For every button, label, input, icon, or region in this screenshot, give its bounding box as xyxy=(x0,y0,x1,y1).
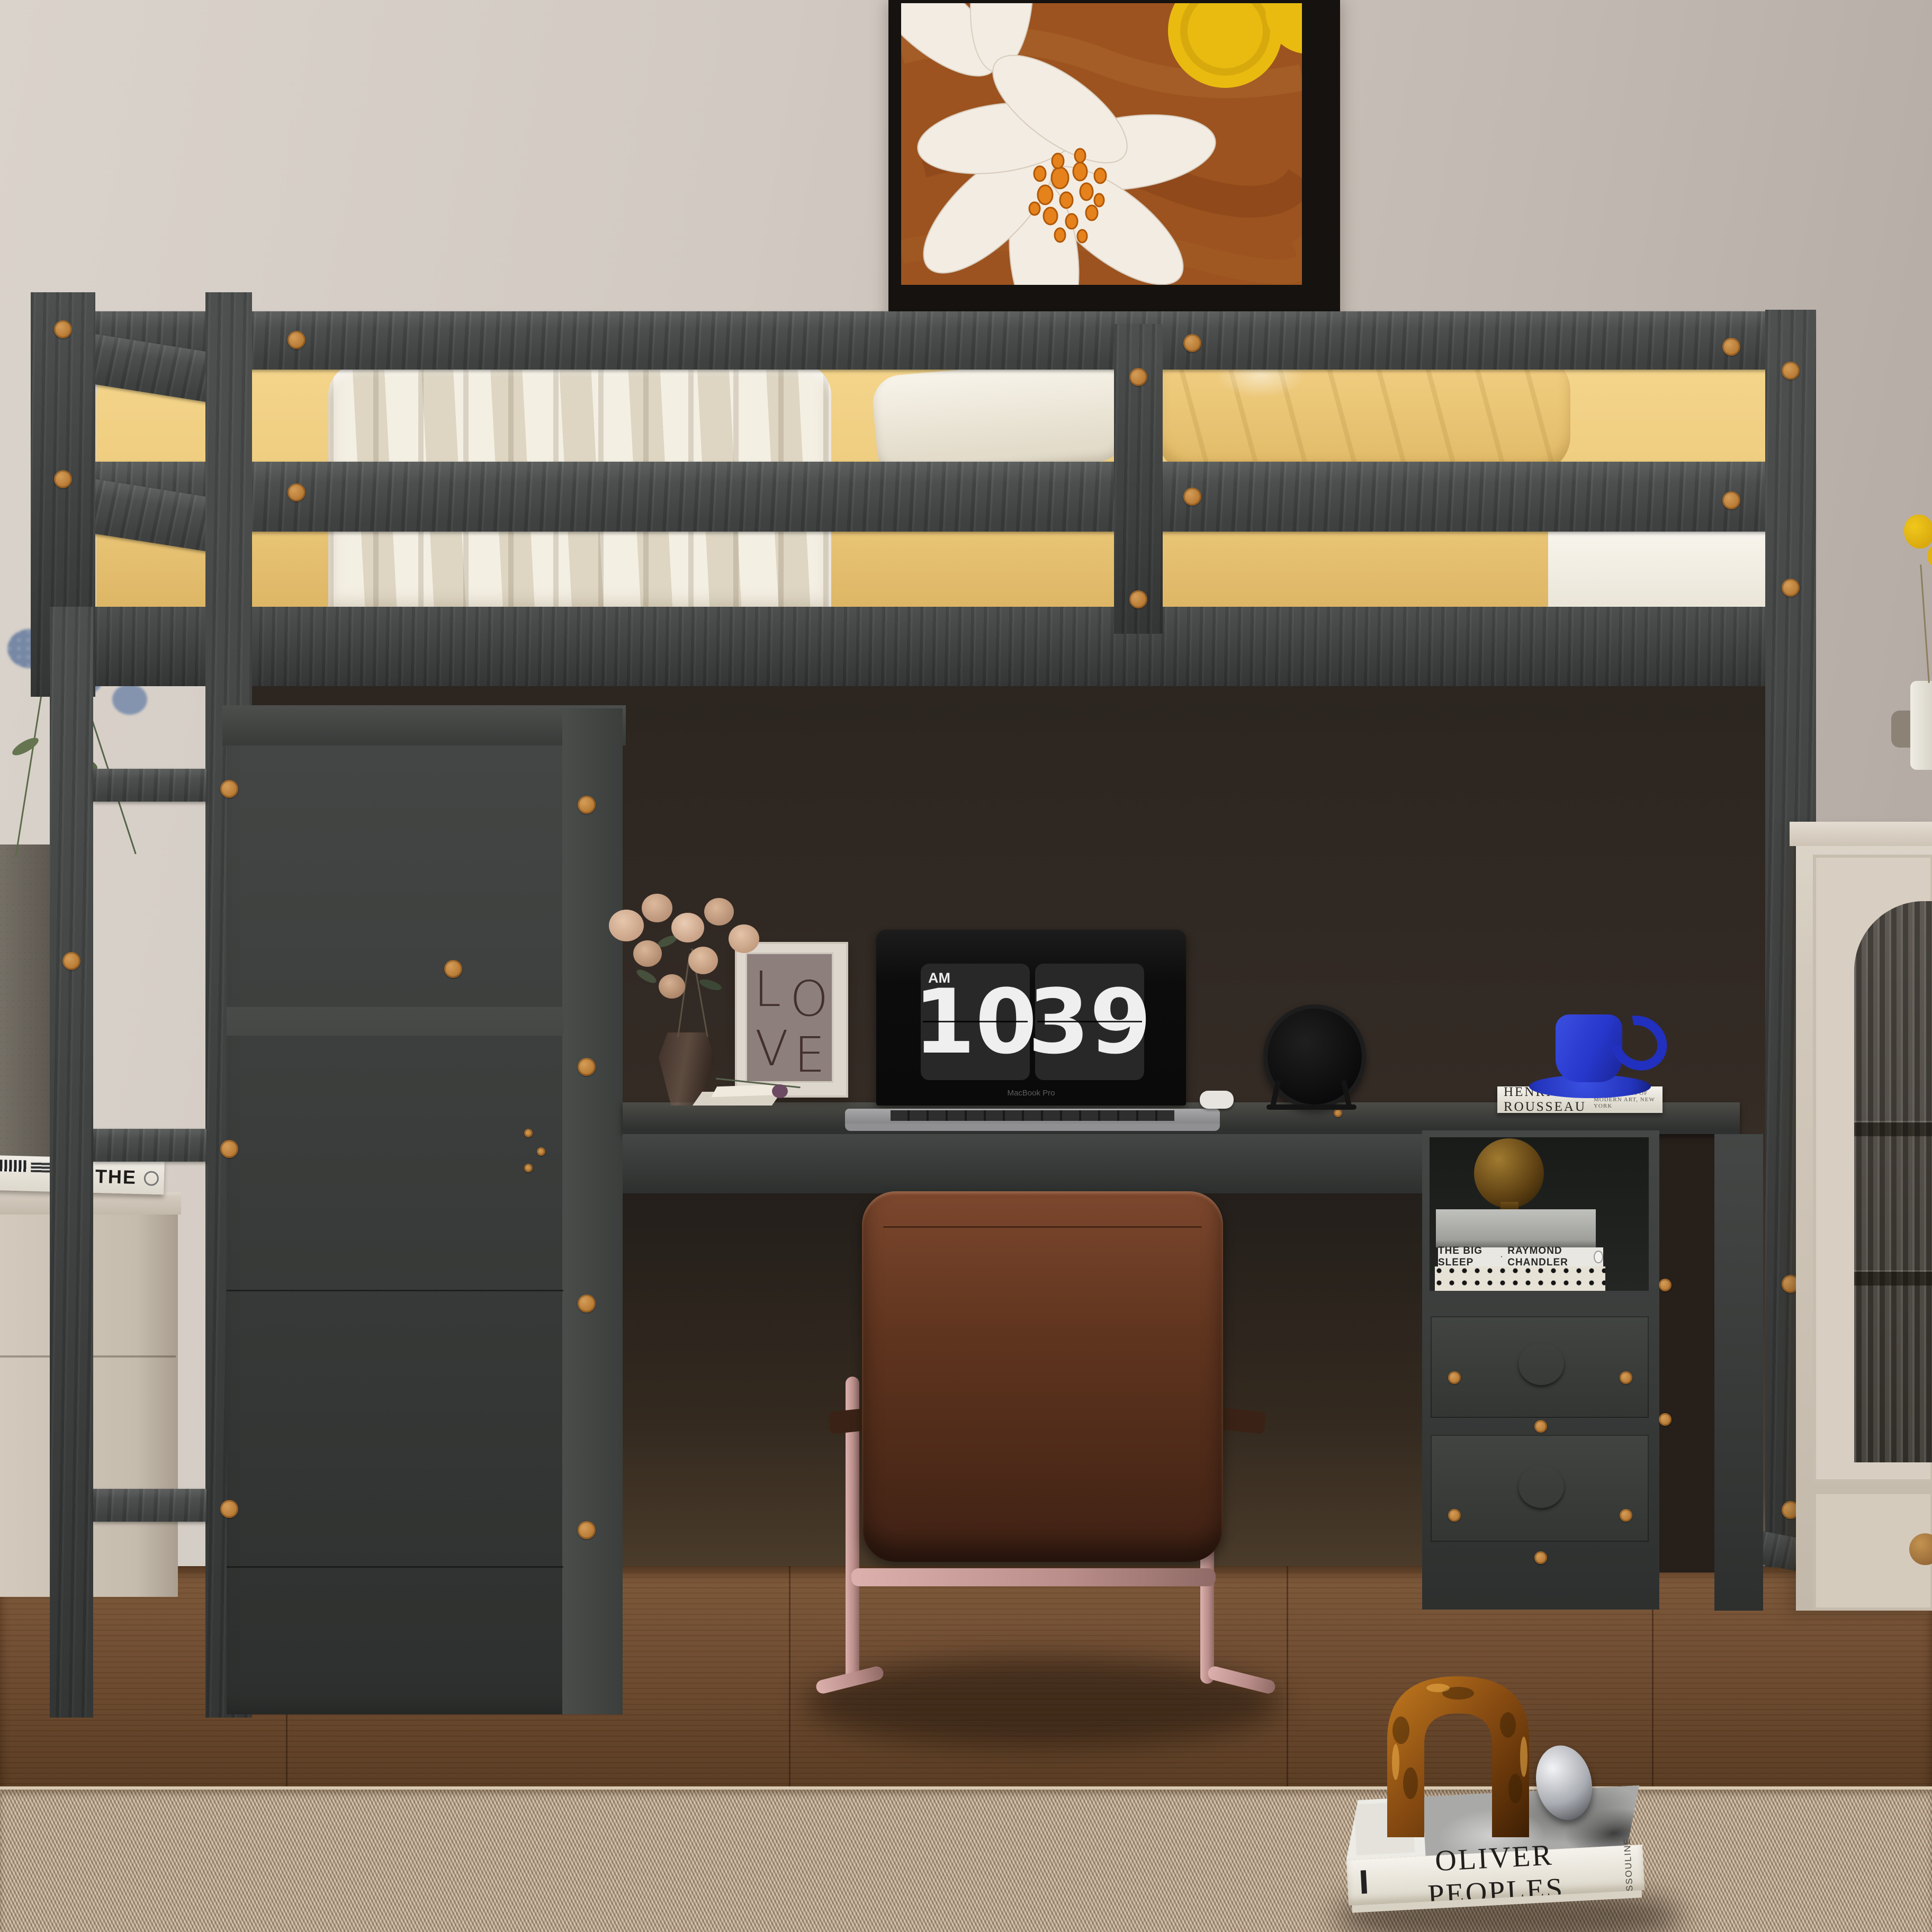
ladder-rung xyxy=(93,769,206,802)
patterned-book xyxy=(1435,1266,1605,1291)
drawer-shelf-cavity: THE BIG SLEEP · RAYMOND CHANDLER xyxy=(1430,1137,1649,1291)
chair-backrest xyxy=(862,1191,1223,1562)
frame-letter-l: L xyxy=(754,961,781,1018)
separator: · xyxy=(1500,1251,1503,1263)
vanity-mirror xyxy=(1263,1004,1366,1109)
flower-painting xyxy=(901,3,1302,285)
wardrobe-rail xyxy=(227,1007,563,1036)
ladder-rung xyxy=(93,1129,206,1162)
side-book-title: THE xyxy=(95,1165,137,1189)
white-pad xyxy=(1200,1091,1234,1109)
gray-book xyxy=(1436,1209,1596,1247)
desk-apron xyxy=(623,1134,1425,1193)
mirror-base xyxy=(1266,1104,1356,1110)
desk-gap-shadow xyxy=(1659,1133,1714,1572)
guard-rail-top xyxy=(51,311,1814,370)
purple-rose xyxy=(772,1084,788,1098)
big-sleep-author: RAYMOND CHANDLER xyxy=(1507,1245,1589,1269)
fluted-glass-door xyxy=(1854,901,1932,1462)
chair-crossbar xyxy=(851,1568,1216,1586)
wall-art-frame xyxy=(888,0,1340,323)
publisher-logo-icon xyxy=(1594,1251,1603,1263)
bed-side-rail xyxy=(31,607,1816,686)
laptop-brand: MacBook Pro xyxy=(876,1089,1186,1098)
frame-letter-o: O xyxy=(790,971,828,1027)
flip-clock-minutes-card: 39 xyxy=(1035,964,1144,1080)
yellow-duvet xyxy=(1157,354,1570,473)
drawer-1-knob xyxy=(1518,1343,1564,1385)
ladder-left-stile xyxy=(50,607,93,1718)
ladder-rung xyxy=(93,1489,206,1522)
guard-rail-mid xyxy=(51,462,1814,532)
right-cabinet-top xyxy=(1790,822,1932,846)
laptop-keyboard xyxy=(891,1110,1174,1121)
love-photo-frame: L O V E xyxy=(735,942,848,1098)
amber-arch-sculpture xyxy=(1369,1651,1549,1841)
big-sleep-title: THE BIG SLEEP xyxy=(1438,1245,1496,1269)
big-sleep-book: THE BIG SLEEP · RAYMOND CHANDLER xyxy=(1438,1247,1603,1266)
clock-meridiem: AM xyxy=(928,970,950,986)
desk-right-leg xyxy=(1714,1134,1763,1611)
wardrobe-right-stile xyxy=(562,708,623,1714)
drawer-2-knob xyxy=(1518,1466,1564,1508)
white-sheet xyxy=(1548,529,1765,614)
yellow-flower xyxy=(1904,515,1932,549)
wardrobe-seam xyxy=(227,1290,563,1291)
bedroom-scene: THE THE BIG SLEEP · RAYMO xyxy=(0,0,1932,1932)
wardrobe-seam xyxy=(227,1566,563,1568)
frame-letter-v: V xyxy=(755,1020,788,1077)
laptop-screen: 10 AM 39 MacBook Pro xyxy=(876,930,1186,1106)
flip-clock-hours-card: 10 AM xyxy=(921,964,1030,1080)
wall-vase xyxy=(1910,681,1932,770)
floor-plank-seam xyxy=(789,1566,790,1787)
floor-plank-seam xyxy=(1287,1566,1288,1787)
frame-letter-e: E xyxy=(794,1027,825,1083)
laptop-front-lip xyxy=(845,1124,1220,1131)
brass-ball-ornament xyxy=(1474,1138,1544,1208)
